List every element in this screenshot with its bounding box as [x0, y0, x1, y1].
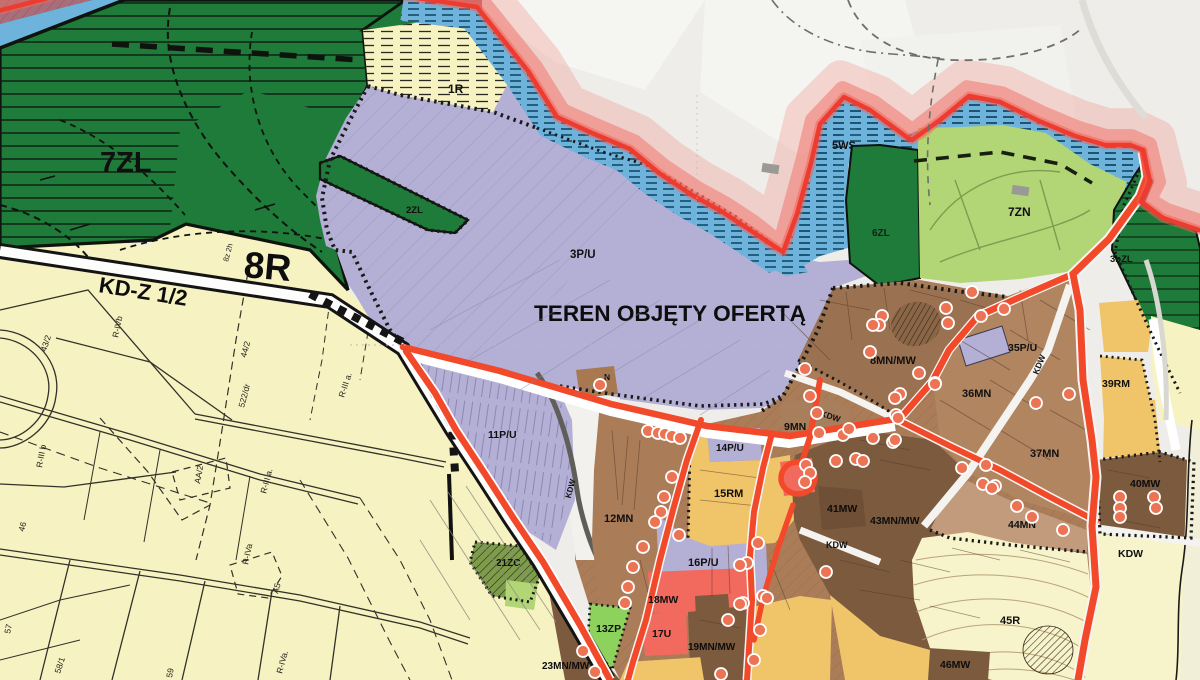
svg-text:37MN: 37MN: [1030, 448, 1059, 460]
svg-text:17U: 17U: [652, 628, 671, 640]
svg-text:1R: 1R: [448, 82, 464, 96]
svg-text:19MN/MW: 19MN/MW: [688, 642, 736, 653]
svg-text:KDW: KDW: [1118, 548, 1143, 560]
svg-text:41MW: 41MW: [827, 503, 857, 515]
svg-text:59: 59: [164, 667, 176, 678]
svg-text:18MW: 18MW: [648, 594, 678, 606]
svg-text:3P/U: 3P/U: [570, 249, 596, 261]
svg-text:12MN: 12MN: [604, 513, 633, 525]
svg-text:2ZL: 2ZL: [406, 205, 423, 216]
svg-text:15RM: 15RM: [714, 488, 743, 500]
svg-text:39RM: 39RM: [1102, 378, 1130, 390]
svg-text:46MW: 46MW: [940, 659, 970, 671]
svg-text:16P/U: 16P/U: [688, 557, 719, 569]
svg-text:36MN: 36MN: [962, 388, 991, 400]
svg-text:6ZL: 6ZL: [872, 228, 890, 239]
svg-text:7ZN: 7ZN: [1008, 205, 1031, 219]
svg-text:13ZP: 13ZP: [596, 623, 621, 635]
svg-text:TEREN OBJĘTY OFERTĄ: TEREN OBJĘTY OFERTĄ: [534, 301, 806, 326]
svg-text:8MN/MW: 8MN/MW: [870, 355, 916, 367]
svg-text:43MN/MW: 43MN/MW: [870, 515, 920, 527]
svg-text:7ZL: 7ZL: [100, 147, 152, 179]
svg-text:KDW: KDW: [826, 540, 848, 550]
svg-text:14P/U: 14P/U: [716, 443, 744, 454]
svg-text:23MN/MW: 23MN/MW: [542, 661, 590, 672]
svg-text:45R: 45R: [1000, 615, 1020, 627]
svg-text:11P/U: 11P/U: [488, 429, 517, 441]
svg-text:8R: 8R: [242, 244, 293, 289]
svg-text:40MW: 40MW: [1130, 478, 1160, 490]
